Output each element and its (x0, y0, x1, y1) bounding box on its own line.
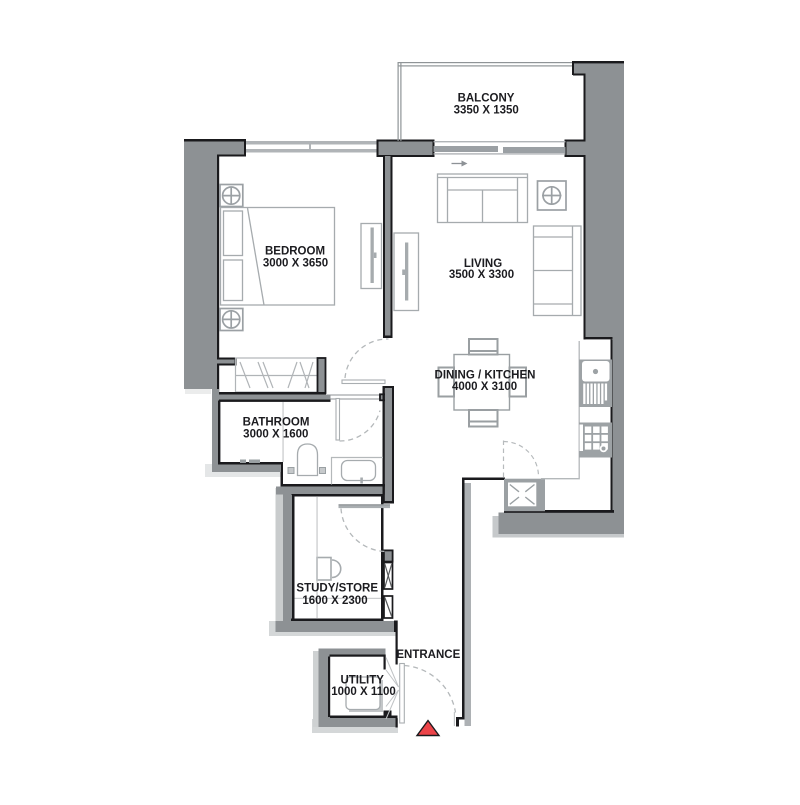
svg-text:3000 X 1600: 3000 X 1600 (243, 428, 308, 440)
svg-text:BALCONY: BALCONY (458, 93, 515, 105)
svg-text:UTILITY: UTILITY (340, 675, 384, 687)
svg-text:4000 X 3100: 4000 X 3100 (452, 381, 517, 393)
svg-text:1600 X 2300: 1600 X 2300 (302, 595, 367, 607)
svg-text:BEDROOM: BEDROOM (265, 246, 325, 258)
svg-text:BATHROOM: BATHROOM (243, 417, 310, 429)
svg-text:3500 X 3300: 3500 X 3300 (449, 269, 514, 281)
svg-text:3000 X 3650: 3000 X 3650 (263, 257, 328, 269)
svg-text:DINING / KITCHEN: DINING / KITCHEN (435, 370, 536, 382)
svg-text:3350 X 1350: 3350 X 1350 (454, 104, 519, 116)
svg-text:ENTRANCE: ENTRANCE (396, 649, 460, 661)
svg-text:1000 X 1100: 1000 X 1100 (331, 686, 396, 698)
svg-text:STUDY/STORE: STUDY/STORE (296, 582, 378, 594)
